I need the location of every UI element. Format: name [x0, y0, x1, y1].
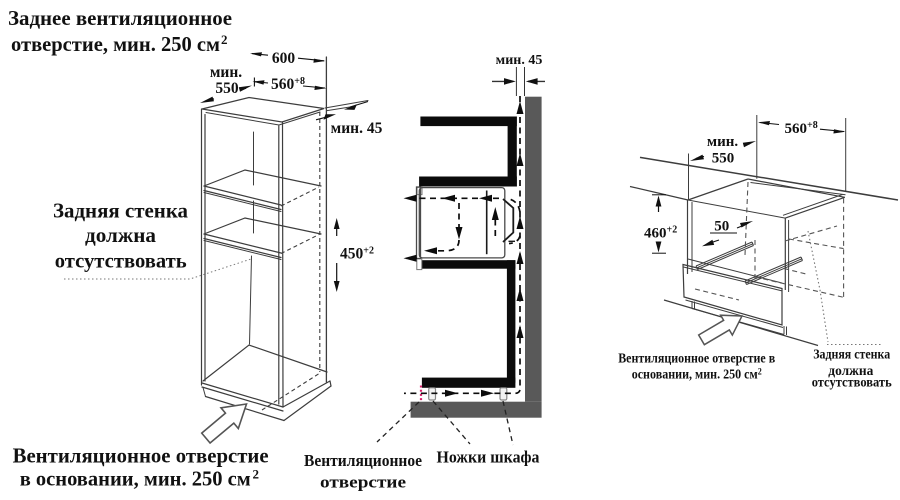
svg-text:основании, мин. 250 см2: основании, мин. 250 см2: [632, 366, 762, 381]
svg-text:отсутствовать: отсутствовать: [55, 249, 187, 273]
svg-text:Заднее вентиляционное: Заднее вентиляционное: [8, 6, 232, 30]
svg-text:отверстие, мин. 250 см: отверстие, мин. 250 см: [11, 32, 220, 56]
svg-text:отсутствовать: отсутствовать: [812, 375, 892, 390]
svg-text:550: 550: [712, 151, 735, 167]
svg-text:Задняя стенка: Задняя стенка: [813, 346, 890, 361]
svg-text:550: 550: [215, 80, 239, 97]
svg-text:Вентиляционное: Вентиляционное: [304, 451, 422, 470]
svg-text:Задняя стенка: Задняя стенка: [53, 198, 188, 222]
svg-text:мин. 45: мин. 45: [331, 120, 383, 137]
svg-text:Вентиляционное отверстие: Вентиляционное отверстие: [13, 444, 269, 468]
svg-text:в основании, мин. 250 см: в основании, мин. 250 см: [20, 467, 251, 491]
svg-text:Вентиляционное отверстие в: Вентиляционное отверстие в: [618, 351, 775, 366]
svg-text:2: 2: [221, 32, 228, 47]
svg-text:отверстие: отверстие: [320, 473, 406, 492]
svg-text:мин.: мин.: [210, 64, 242, 81]
svg-text:мин. 45: мин. 45: [496, 53, 543, 68]
svg-text:2: 2: [253, 467, 260, 482]
svg-text:должна: должна: [85, 223, 156, 247]
svg-text:мин.: мин.: [707, 134, 739, 150]
svg-text:Ножки шкафа: Ножки шкафа: [437, 448, 540, 467]
svg-text:600: 600: [272, 50, 296, 67]
svg-text:50: 50: [714, 219, 729, 235]
